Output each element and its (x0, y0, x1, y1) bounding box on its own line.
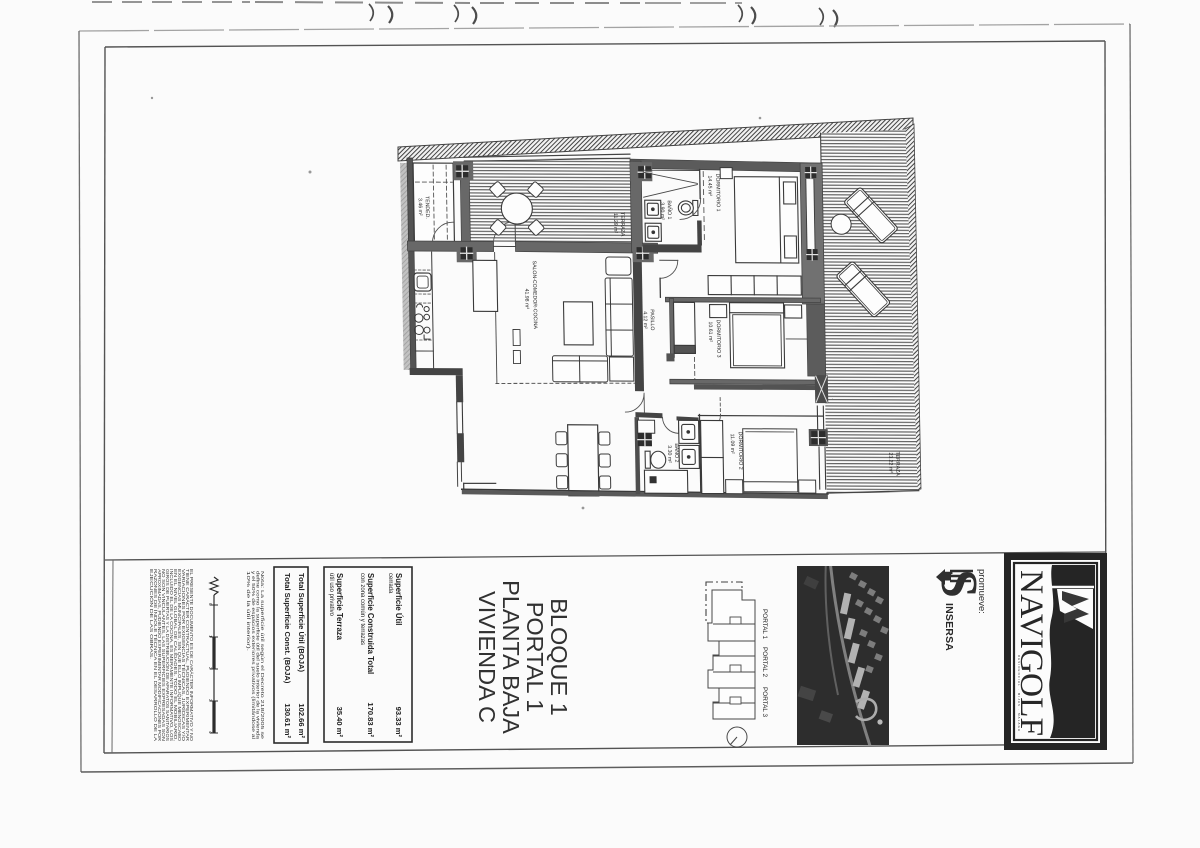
svg-text:41.98 m²: 41.98 m² (523, 289, 529, 310)
svg-text:útil uso privativo: útil uso privativo (328, 573, 334, 617)
svg-text:BLOQUE 1: BLOQUE 1 (546, 598, 572, 716)
svg-text:SALON-COMEDOR-COCINA: SALON-COMEDOR-COCINA (531, 261, 538, 330)
svg-text:3.30 m²: 3.30 m² (666, 445, 672, 463)
svg-text:130.61 m²: 130.61 m² (283, 703, 292, 738)
svg-text:PASILLO: PASILLO (649, 309, 655, 330)
svg-text:TERRAZA: TERRAZA (619, 212, 625, 237)
svg-text:VIVIENDA C: VIVIENDA C (474, 591, 500, 723)
svg-text:cerrada: cerrada (387, 573, 393, 594)
svg-text:3.90 m²: 3.90 m² (659, 202, 665, 220)
svg-text:170.83 m²: 170.83 m² (366, 702, 375, 737)
svg-text:Superficie Terraza: Superficie Terraza (335, 573, 344, 641)
svg-text:102.66 m²: 102.66 m² (297, 703, 306, 738)
svg-text:10.61 m²: 10.61 m² (707, 322, 713, 343)
svg-text:BAÑO 1: BAÑO 1 (666, 200, 673, 219)
svg-text:14.45 m²: 14.45 m² (706, 176, 712, 197)
svg-text:con zona común y terrazas: con zona común y terrazas (359, 573, 365, 645)
svg-text:TENDED.: TENDED. (424, 196, 430, 219)
svg-text:INSERSA: INSERSA (943, 603, 955, 651)
svg-text:Total Superficie Útil (BOJA): Total Superficie Útil (BOJA) (297, 573, 306, 672)
svg-text:4.12 m²: 4.12 m² (642, 311, 648, 329)
svg-text:TERRAZA: TERRAZA (894, 451, 900, 476)
svg-text:RESIDENCIAL · MIJAS · MALAGA: RESIDENCIAL · MIJAS · MALAGA (1017, 655, 1021, 732)
svg-text:EJECUCIÓN DE LAS OBRAS.: EJECUCIÓN DE LAS OBRAS. (149, 569, 154, 659)
svg-text:23.22 m²: 23.22 m² (887, 452, 893, 473)
svg-text:0: 0 (208, 603, 213, 606)
svg-text:3: 3 (208, 699, 213, 702)
svg-text:10% de la útil interior).: 10% de la útil interior). (246, 571, 251, 651)
svg-text:DORMITORIO 1: DORMITORIO 1 (714, 174, 721, 212)
svg-text:PORTAL 3: PORTAL 3 (761, 687, 768, 718)
svg-text:PORTAL 2: PORTAL 2 (761, 647, 768, 678)
svg-text:PORTAL 1: PORTAL 1 (761, 609, 768, 640)
svg-text:PORTAL 1: PORTAL 1 (522, 602, 548, 713)
svg-text:11.09 m²: 11.09 m² (729, 434, 735, 454)
svg-text:2: 2 (208, 667, 213, 670)
svg-text:3.46 m²: 3.46 m² (417, 198, 423, 216)
svg-text:35.40 m²: 35.40 m² (335, 707, 344, 738)
svg-text:Total Superficie Const. (BOJA): Total Superficie Const. (BOJA) (283, 573, 292, 684)
svg-text:Superficie Construida Total: Superficie Construida Total (366, 573, 375, 674)
svg-text:PLANTA BAJA: PLANTA BAJA (498, 580, 524, 734)
svg-text:Superficie Útil: Superficie Útil (394, 573, 403, 625)
svg-text:93.33 m²: 93.33 m² (394, 707, 403, 738)
svg-text:DORMITORIO 3: DORMITORIO 3 (715, 320, 722, 358)
svg-text:11.29 m²: 11.29 m² (612, 213, 618, 233)
svg-text:S: S (930, 569, 987, 598)
svg-text:4: 4 (208, 731, 213, 734)
svg-text:1: 1 (208, 635, 213, 638)
